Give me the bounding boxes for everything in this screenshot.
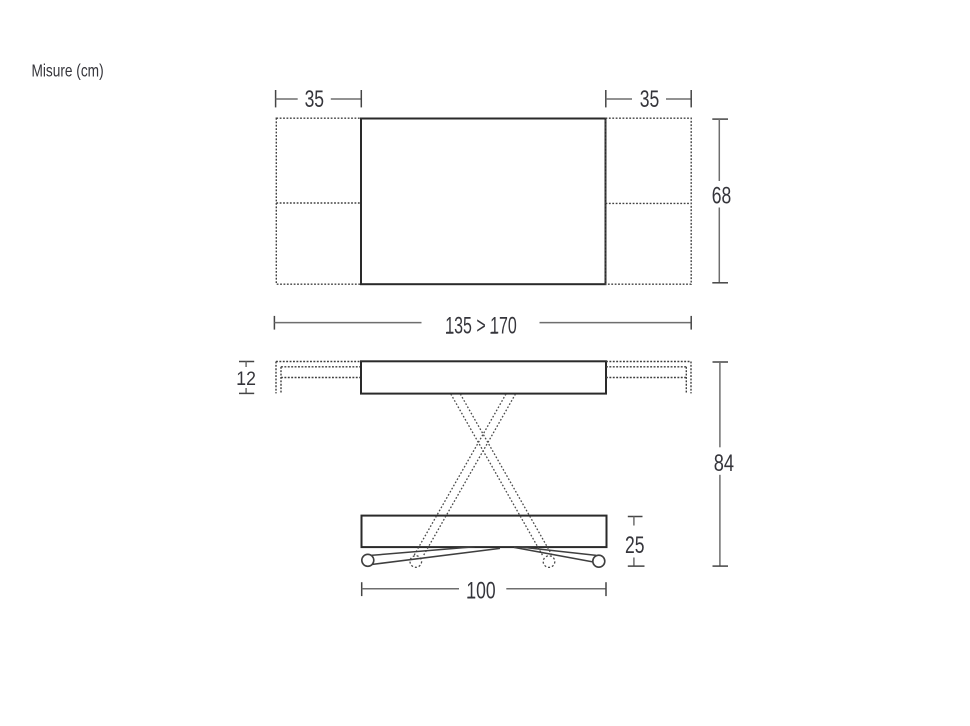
svg-text:100: 100 bbox=[466, 578, 495, 604]
svg-text:35: 35 bbox=[640, 86, 659, 112]
svg-text:12: 12 bbox=[236, 367, 256, 389]
svg-text:25: 25 bbox=[625, 532, 644, 558]
svg-text:35: 35 bbox=[305, 87, 324, 113]
svg-text:84: 84 bbox=[714, 450, 734, 477]
svg-text:68: 68 bbox=[712, 183, 731, 209]
svg-text:135 > 170: 135 > 170 bbox=[445, 314, 516, 340]
svg-text:Misure (cm): Misure (cm) bbox=[32, 62, 104, 81]
